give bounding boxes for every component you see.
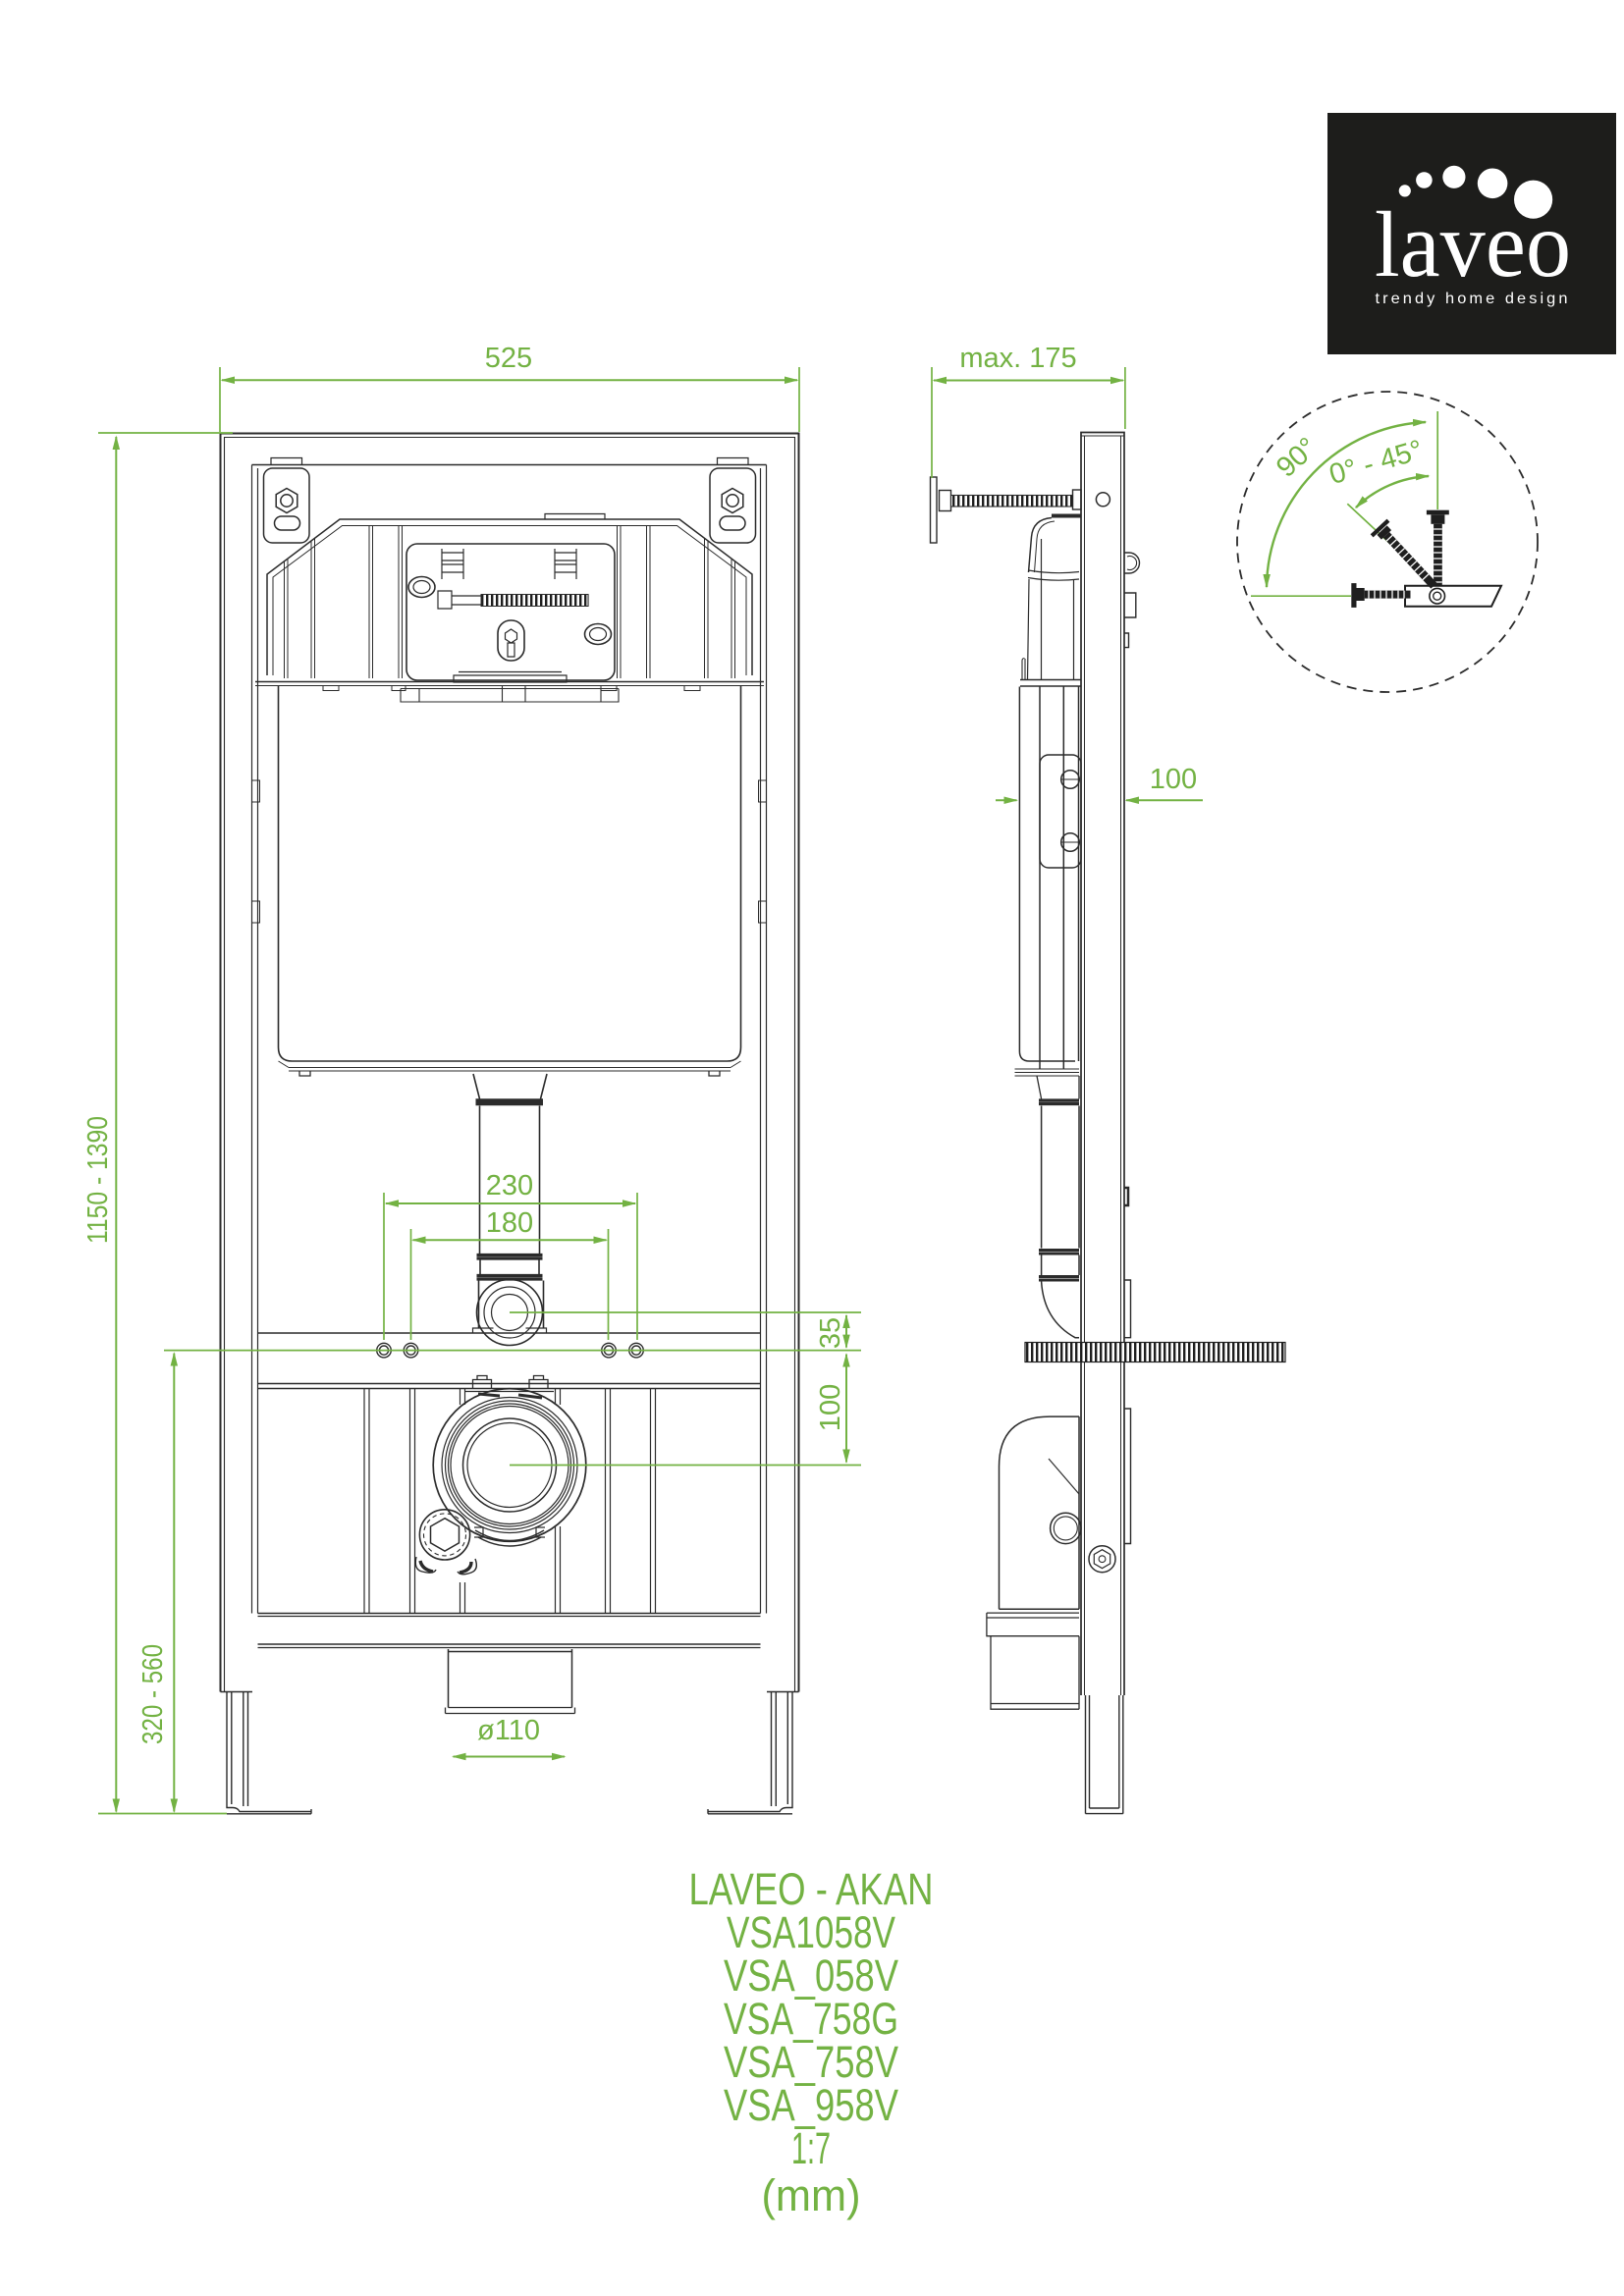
svg-text:1150 - 1390: 1150 - 1390 xyxy=(82,1116,114,1244)
svg-text:max. 175: max. 175 xyxy=(959,343,1076,374)
svg-text:laveo: laveo xyxy=(1375,192,1571,296)
svg-text:trendy home design: trendy home design xyxy=(1376,291,1571,307)
svg-text:320 - 560: 320 - 560 xyxy=(137,1644,169,1744)
svg-text:100: 100 xyxy=(815,1384,846,1431)
svg-text:180: 180 xyxy=(486,1207,533,1239)
svg-text:(mm): (mm) xyxy=(762,2170,861,2220)
svg-text:1:7: 1:7 xyxy=(791,2123,831,2173)
svg-text:ø110: ø110 xyxy=(477,1715,540,1746)
svg-text:35: 35 xyxy=(815,1317,846,1349)
svg-text:100: 100 xyxy=(1150,764,1197,795)
svg-text:230: 230 xyxy=(486,1170,533,1201)
svg-text:525: 525 xyxy=(485,343,532,374)
